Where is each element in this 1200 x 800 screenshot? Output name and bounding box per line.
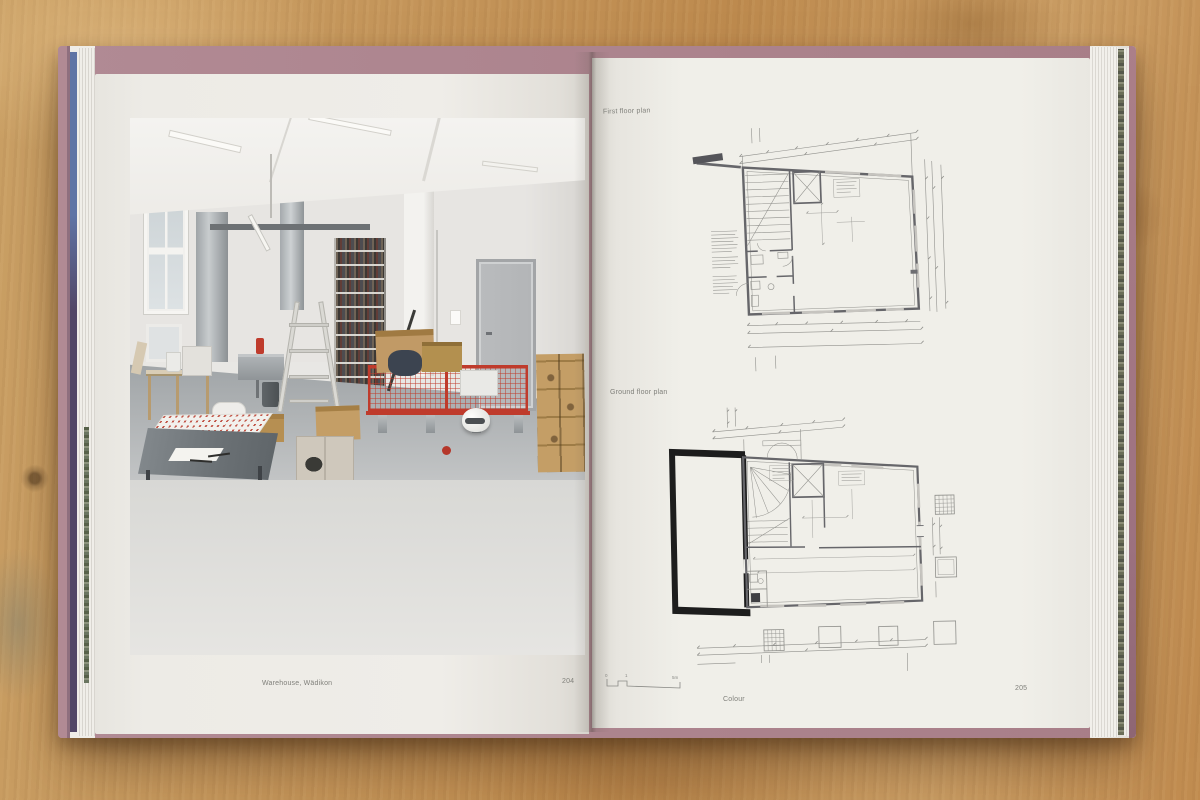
ladder-leg bbox=[318, 301, 340, 412]
foreground-table-leg bbox=[258, 466, 262, 480]
trolley-leg bbox=[426, 415, 435, 433]
trolley-white-box bbox=[460, 370, 498, 396]
photo-work-table bbox=[146, 370, 212, 420]
book-left-cover-edge bbox=[58, 46, 95, 738]
photo-horizontal-duct bbox=[210, 224, 370, 230]
plan2-right-door bbox=[917, 526, 924, 537]
plan2-small-rooms bbox=[747, 571, 768, 607]
plan2-heavy-courtyard-walls bbox=[669, 447, 751, 618]
right-page: First floor plan bbox=[592, 58, 1090, 728]
left-photo-page-edge bbox=[84, 427, 89, 683]
ladder-leg bbox=[277, 301, 299, 412]
foreground-table-leg bbox=[146, 470, 150, 480]
trolley-dark-bag bbox=[388, 350, 422, 376]
helmet-visor bbox=[465, 418, 485, 424]
first-floor-plan bbox=[683, 119, 954, 396]
first-floor-plan-label: First floor plan bbox=[603, 107, 651, 116]
photo-stacked-boxes bbox=[536, 354, 585, 473]
photo-wall-panel bbox=[450, 310, 461, 325]
plan1-interior-dims bbox=[806, 201, 865, 245]
ground-floor-plan-label: Ground floor plan bbox=[610, 389, 668, 397]
photo-red-ball bbox=[442, 446, 451, 455]
photo-printed-box bbox=[296, 436, 354, 482]
scale-tick-5m: 5m bbox=[672, 675, 679, 680]
left-page: Warehouse, Wädikon 204 bbox=[95, 74, 589, 734]
photo-red-bottle bbox=[256, 338, 264, 354]
photo-white-cabinet bbox=[182, 346, 212, 376]
photo-wall-shadow bbox=[525, 172, 585, 372]
photo-wall-sink bbox=[238, 354, 284, 380]
photo-duct-column-right bbox=[280, 198, 304, 310]
ladder-rung bbox=[289, 323, 329, 327]
left-colored-page-edge bbox=[70, 52, 77, 732]
photo-red-mesh-trolley bbox=[368, 365, 528, 423]
left-page-caption: Warehouse, Wädikon bbox=[262, 680, 332, 688]
ladder-rung bbox=[289, 349, 329, 353]
photo-pale-foreground bbox=[130, 480, 585, 655]
plan2-elevator bbox=[792, 464, 824, 498]
plan2-windows bbox=[757, 462, 922, 607]
photo-bucket bbox=[166, 352, 181, 372]
scale-bar: 0 1 5m bbox=[604, 672, 690, 694]
plan2-room-labels bbox=[769, 464, 864, 487]
photo-door-handle bbox=[486, 332, 492, 335]
photo-hanging-wire bbox=[270, 154, 272, 218]
plan1-elevator bbox=[793, 171, 821, 203]
right-page-caption: Colour bbox=[723, 696, 745, 704]
plan1-room-label bbox=[833, 179, 860, 198]
trolley-leg bbox=[514, 415, 523, 433]
scale-tick-0: 0 bbox=[605, 673, 608, 678]
book-fore-edge bbox=[1090, 46, 1136, 738]
photo-trash-bin bbox=[262, 382, 279, 407]
plan1-party-wall bbox=[692, 153, 740, 169]
trolley-box-2 bbox=[422, 342, 462, 372]
plan1-dimension-lines bbox=[738, 122, 950, 372]
warehouse-interior-photo bbox=[130, 118, 585, 655]
right-page-number: 205 bbox=[1015, 685, 1027, 693]
plan1-stairs bbox=[745, 170, 792, 252]
work-table-leg bbox=[148, 376, 151, 420]
book: Warehouse, Wädikon 204 First floor plan bbox=[58, 46, 1136, 738]
trolley-leg bbox=[378, 415, 387, 433]
photo-stepladder bbox=[280, 301, 338, 413]
ladder-rung bbox=[289, 375, 329, 379]
ground-floor-plan bbox=[650, 397, 965, 695]
ladder-rung bbox=[289, 399, 329, 403]
fore-edge-page-stack bbox=[1090, 47, 1118, 737]
photo-sink-pipe bbox=[256, 380, 259, 398]
plan1-annotation-text bbox=[711, 231, 740, 294]
plan1-partitions bbox=[747, 250, 795, 315]
plan1-windows bbox=[757, 169, 919, 314]
photo-duct-column-left bbox=[196, 212, 228, 362]
plan2-interior-dims bbox=[752, 488, 916, 573]
plan1-fixtures bbox=[750, 248, 919, 307]
trolley-rail bbox=[366, 411, 530, 415]
photo-helmet bbox=[462, 408, 490, 432]
work-table-leg bbox=[176, 376, 179, 420]
scale-tick-1: 1 bbox=[625, 673, 628, 678]
plan2-entrance bbox=[763, 440, 801, 460]
plan1-building-outline bbox=[743, 162, 919, 315]
right-cover-edge bbox=[1129, 46, 1136, 738]
left-page-number: 204 bbox=[562, 678, 574, 686]
photo-of-open-book: { "book": { "left_page": { "caption": "W… bbox=[0, 0, 1200, 800]
